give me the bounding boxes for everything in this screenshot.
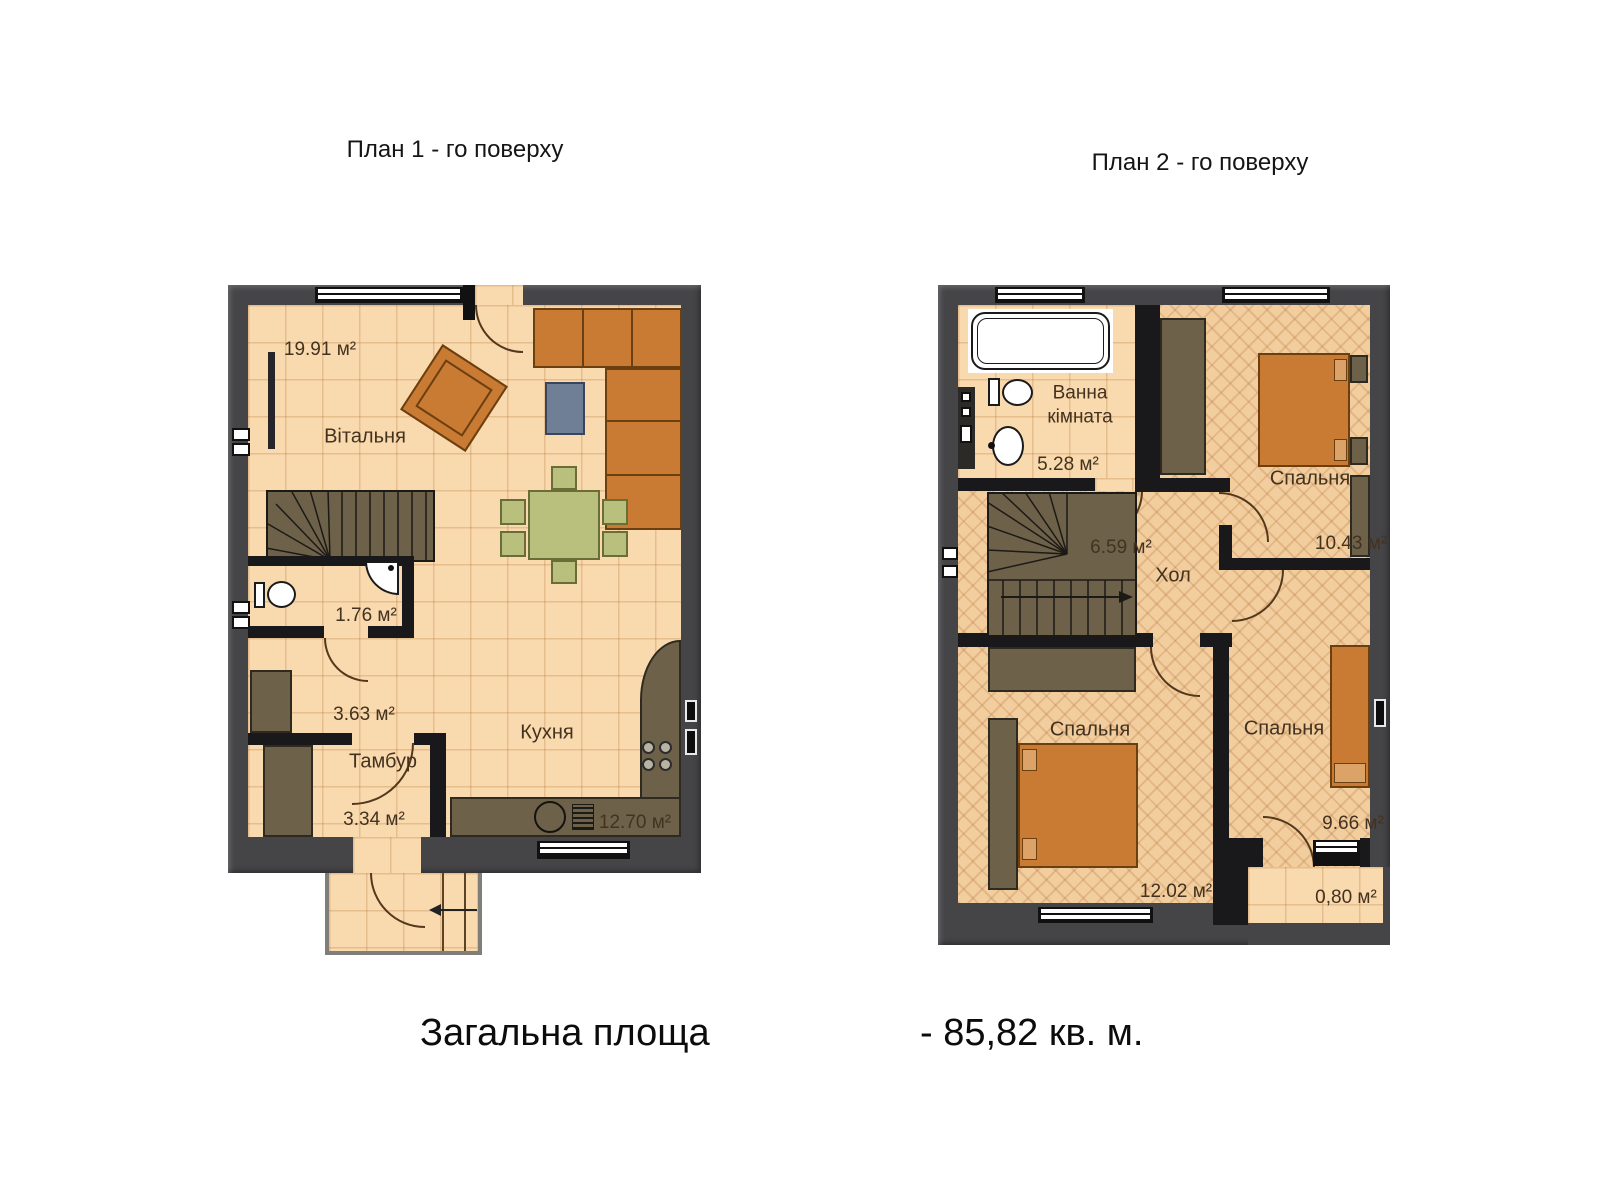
toilet-icon [254,582,265,608]
total-area-label: Загальна площа [420,1012,710,1055]
wall-panel-icon [685,729,697,755]
area-bedroom-right: 9.66 м² [1322,813,1384,835]
stove-burner-icon [642,741,655,754]
wall [1248,923,1390,945]
floorplan-2: Ванна кімната 5.28 м² 6.59 м² Хол Спальн… [938,285,1390,945]
label-bedroom-left: Спальня [1050,719,1130,742]
nightstand [1350,437,1368,465]
label-bedroom-right: Спальня [1244,718,1324,741]
faucet-icon [988,442,995,449]
chair [602,499,628,525]
vent-icon [960,425,972,443]
vent-icon [232,428,250,441]
stove-burner-icon [642,758,655,771]
total-area-value: - 85,82 кв. м. [920,1012,1143,1055]
vent-icon [961,407,971,417]
toilet-icon [267,581,296,608]
wall [1219,558,1370,570]
vent-icon [961,392,971,402]
dining-table [528,490,600,560]
window [1313,840,1360,866]
plan2-title: План 2 - го поверху [1092,149,1309,177]
plan1-title: План 1 - го поверху [347,136,564,164]
door-opening [475,285,523,305]
wall [1135,305,1160,478]
area-hall: 6.59 м² [1090,537,1152,559]
door-opening [1095,478,1135,491]
wall [1229,838,1263,867]
chair [551,560,577,584]
toilet-icon [988,378,1000,406]
blanket-fold [1334,763,1366,783]
dish-rack-icon [572,804,594,830]
window [315,287,463,303]
pillow-icon [1334,439,1347,461]
chair [500,499,526,525]
label-bathroom: Ванна кімната [1024,381,1136,429]
stairs [266,490,435,562]
label-vestibule: Тамбур [349,751,417,774]
vent-icon [232,443,250,456]
coffee-table [545,382,585,435]
vent-icon [942,547,958,560]
area-vestibule: 3.34 м² [343,809,405,831]
area-bedroom-top: 10.43 м² [1315,533,1387,555]
wardrobe [1160,318,1206,475]
chair [551,466,577,490]
label-bedroom-top: Спальня [1270,468,1350,491]
wall [958,478,1095,491]
area-hallway: 3.63 м² [333,704,395,726]
area-living: 19.91 м² [284,339,356,361]
floorplan-1: 19.91 м² Вітальня 1.76 м² 3.63 м² Тамбур… [228,285,701,873]
area-bathroom: 5.28 м² [1037,454,1099,476]
window [1038,907,1153,923]
tv [268,352,275,449]
pillow-icon [1334,359,1347,381]
washbasin-icon [992,426,1024,466]
stove-burner-icon [659,758,672,771]
door-leaf [463,285,475,320]
faucet-icon [388,565,394,571]
entry-arrow-icon [427,901,479,919]
door-arc [370,873,425,928]
wall [1213,633,1229,843]
stairs [987,492,1137,637]
wall [1383,867,1390,923]
entry-opening [353,837,421,873]
label-living: Вітальня [324,426,406,449]
wardrobe [988,718,1018,890]
chair [500,531,526,557]
bathtub-icon [971,312,1110,370]
nightstand [1350,355,1368,383]
label-hall: Хол [1155,565,1190,588]
wall [368,626,414,638]
pillow-icon [1022,838,1037,860]
wall [248,626,324,638]
wall [1135,478,1230,492]
wall [248,733,352,745]
wall [1360,838,1370,867]
chair [602,531,628,557]
sofa [533,308,682,368]
wall [430,733,446,837]
area-wc: 1.76 м² [335,605,397,627]
window [1222,287,1330,303]
vent-icon [942,565,958,578]
closet [263,745,313,837]
stove-burner-icon [659,741,672,754]
kitchen-sink-icon [534,801,566,833]
label-kitchen: Кухня [520,722,574,745]
area-kitchen: 12.70 м² [599,812,671,834]
area-balcony: 0,80 м² [1315,887,1377,909]
vent-icon [232,601,250,614]
wall-panel-icon [685,700,697,722]
closet [250,670,292,733]
wall-panel-icon [1374,699,1386,727]
wardrobe [988,647,1136,692]
porch [325,873,482,955]
window [995,287,1085,303]
area-bedroom-left: 12.02 м² [1140,881,1212,903]
pillow-icon [1022,749,1037,771]
window [537,841,630,859]
